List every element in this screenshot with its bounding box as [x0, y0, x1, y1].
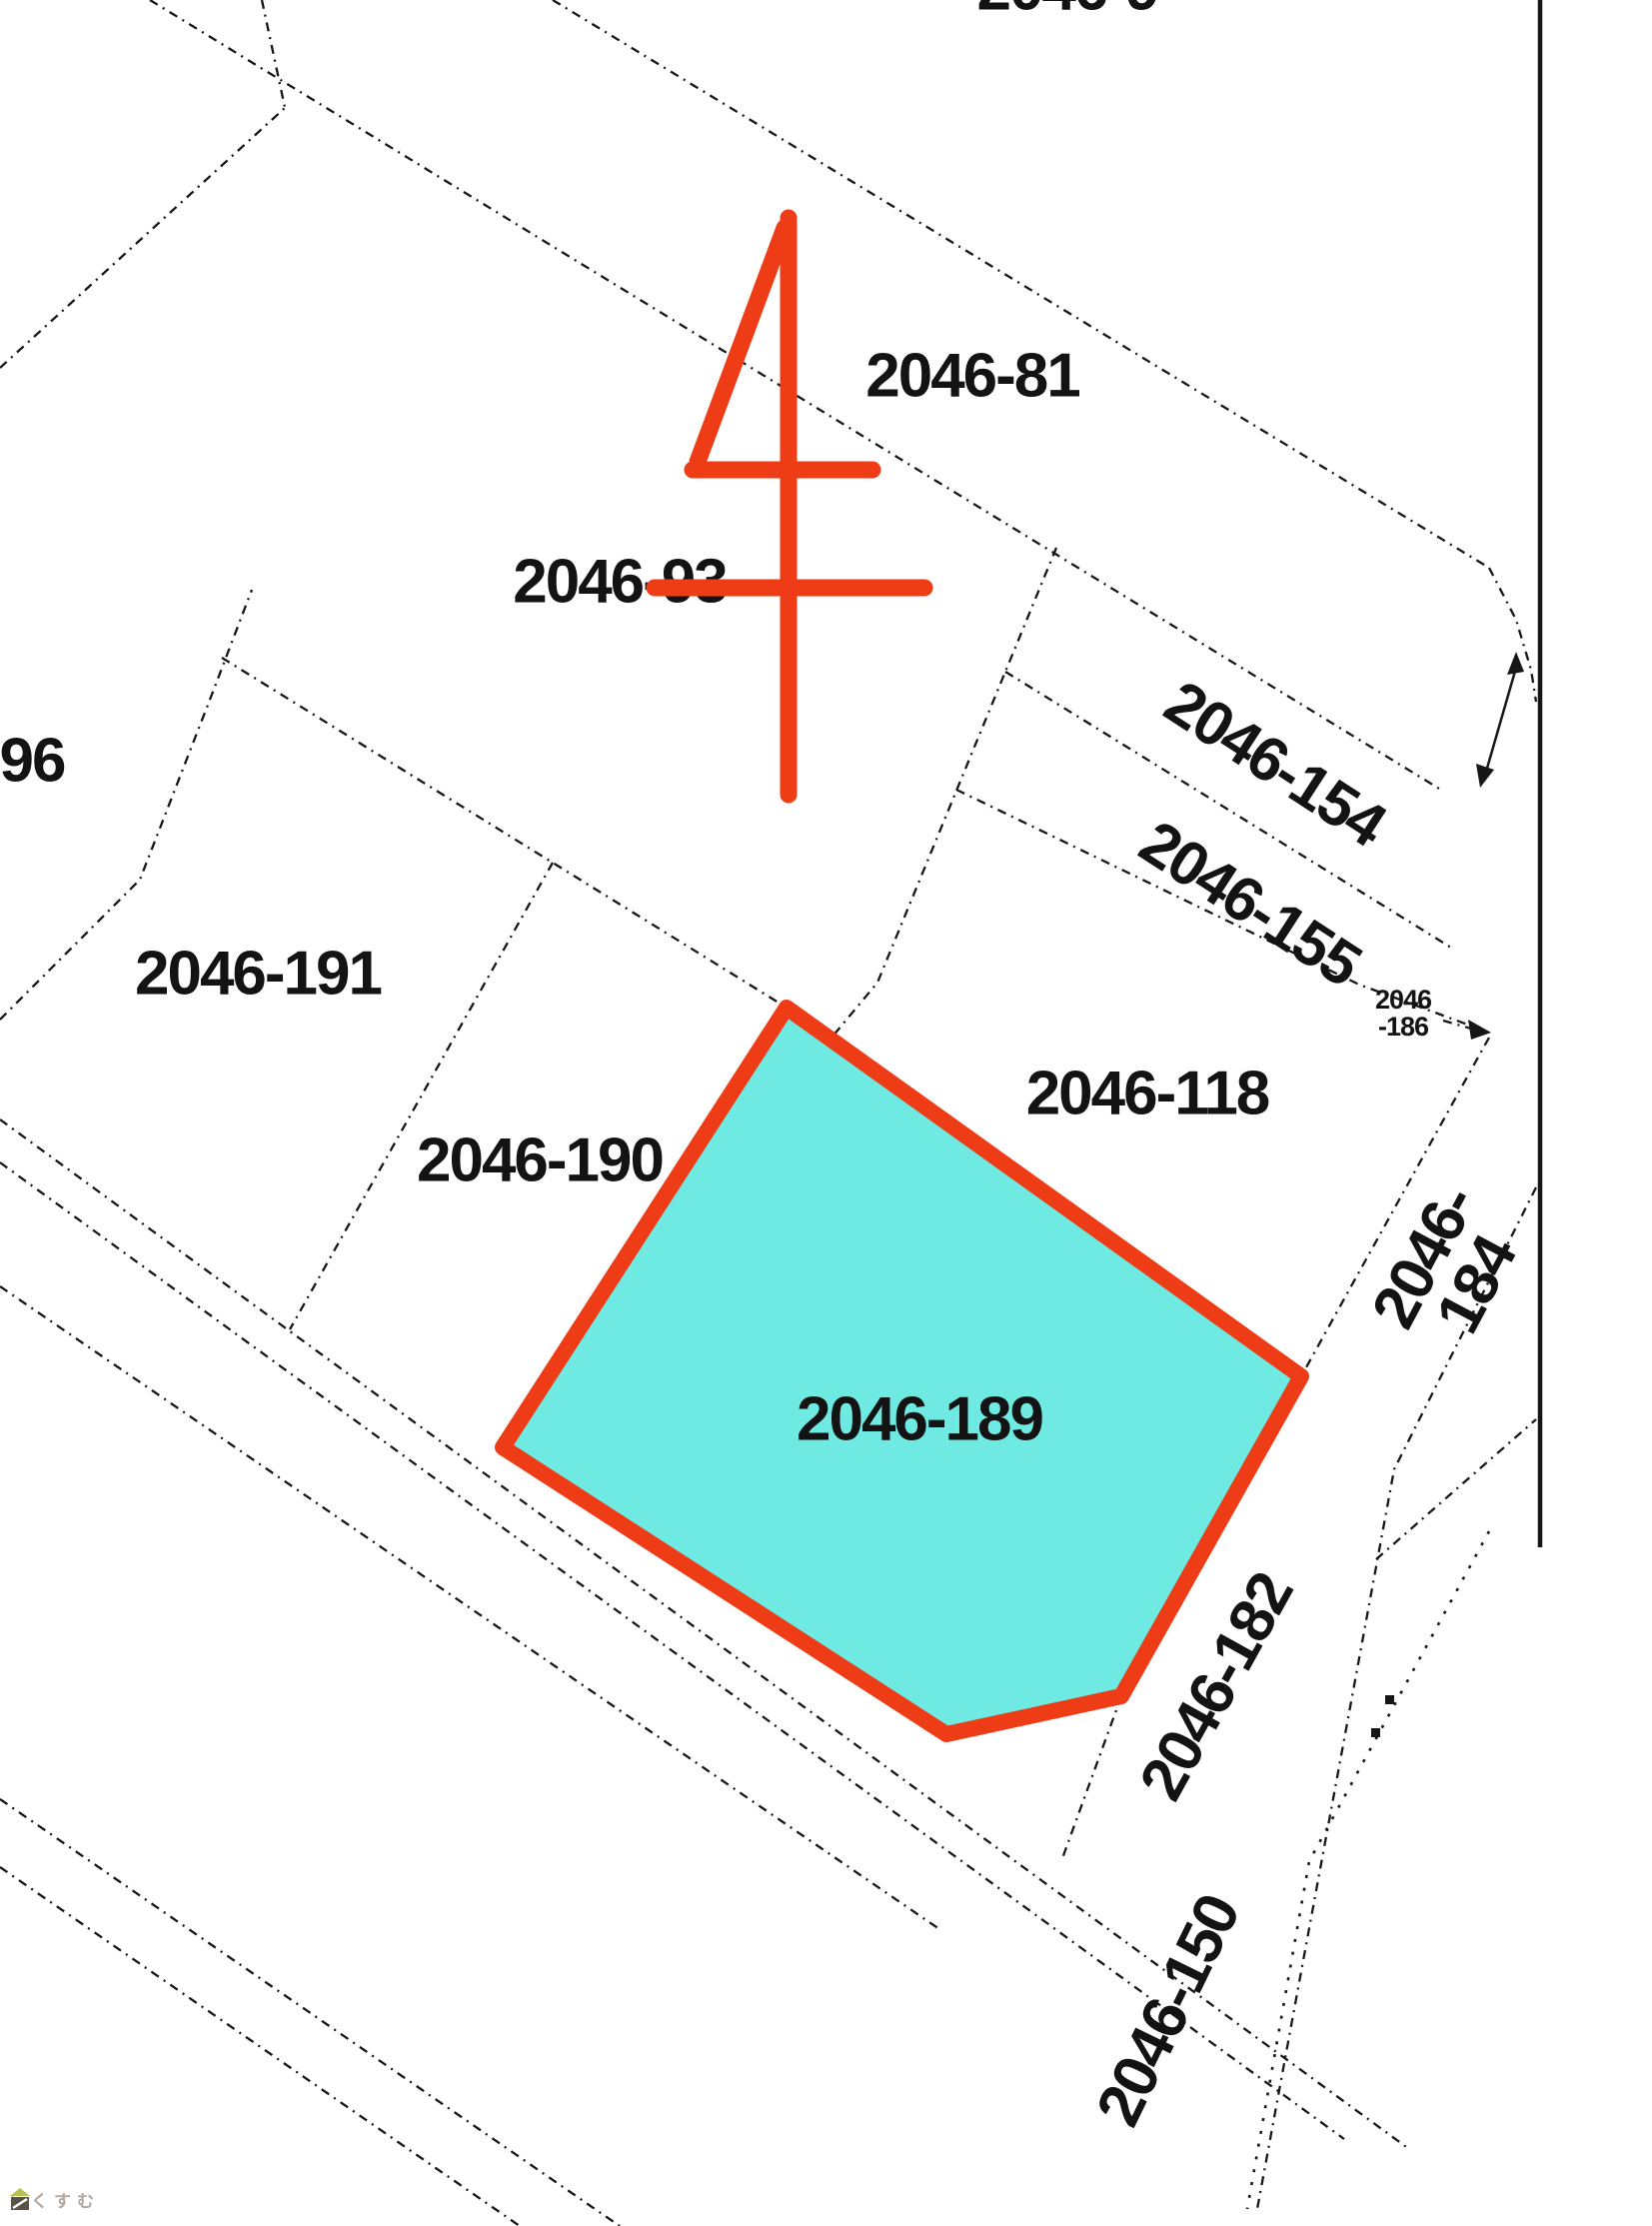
- parcel-label-2046-191: 2046-191: [135, 946, 381, 1005]
- watermark: らくすむ: [8, 2187, 100, 2212]
- parcel-label-2046-186: 2046 -186: [1375, 987, 1431, 1041]
- parcel-label-2046-81: 2046-81: [865, 348, 1079, 407]
- parcel-label-2046-190: 2046-190: [417, 1132, 663, 1191]
- house-icon: [8, 2187, 34, 2211]
- parcel-label-2046-184: 2046-184: [1352, 1155, 1550, 1388]
- parcel-label-96: 96: [0, 733, 64, 792]
- cadastral-map: 2046-92046-812046-932046-1542046-1552046…: [0, 0, 1652, 2226]
- parcel-label-2046-150: 2046-150: [1089, 1888, 1250, 2135]
- parcel-label-2046-9: 2046-9: [976, 0, 1157, 19]
- parcel-labels: 2046-92046-812046-932046-1542046-1552046…: [0, 0, 1652, 2226]
- parcel-label-2046-93: 2046-93: [513, 554, 727, 613]
- parcel-label-2046-118: 2046-118: [1026, 1066, 1269, 1124]
- parcel-label-2046-182: 2046-182: [1132, 1565, 1303, 1809]
- parcel-label-2046-189[interactable]: 2046-189: [797, 1391, 1042, 1450]
